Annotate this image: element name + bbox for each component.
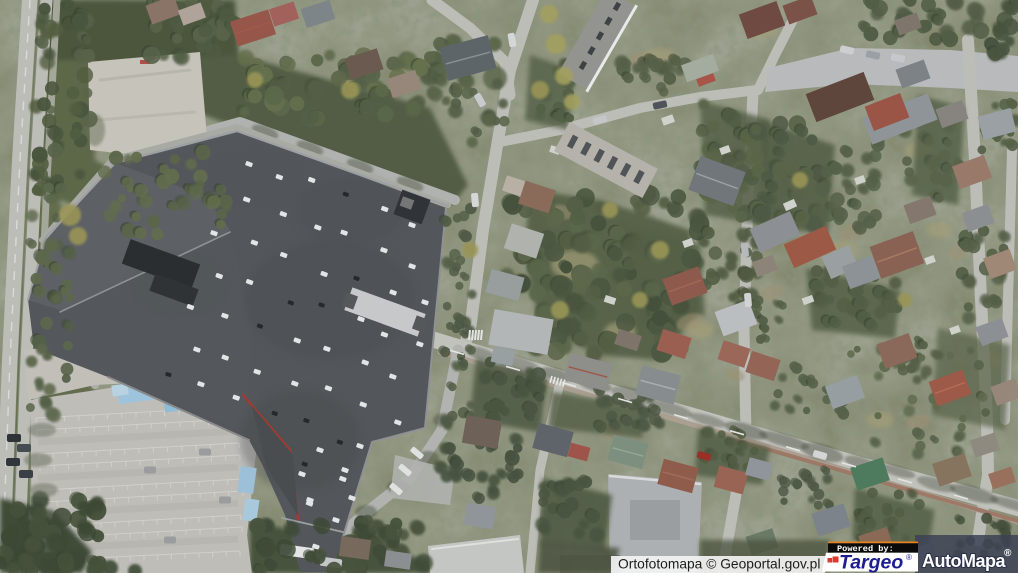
svg-text:Ortofotomapa © Geoportal.gov.p: Ortofotomapa © Geoportal.gov.pl [618,557,820,572]
svg-text:®: ® [906,553,912,562]
svg-text:®: ® [1004,548,1012,559]
svg-text:Targeo: Targeo [839,552,903,573]
svg-text:AutoMapa: AutoMapa [922,551,1006,571]
